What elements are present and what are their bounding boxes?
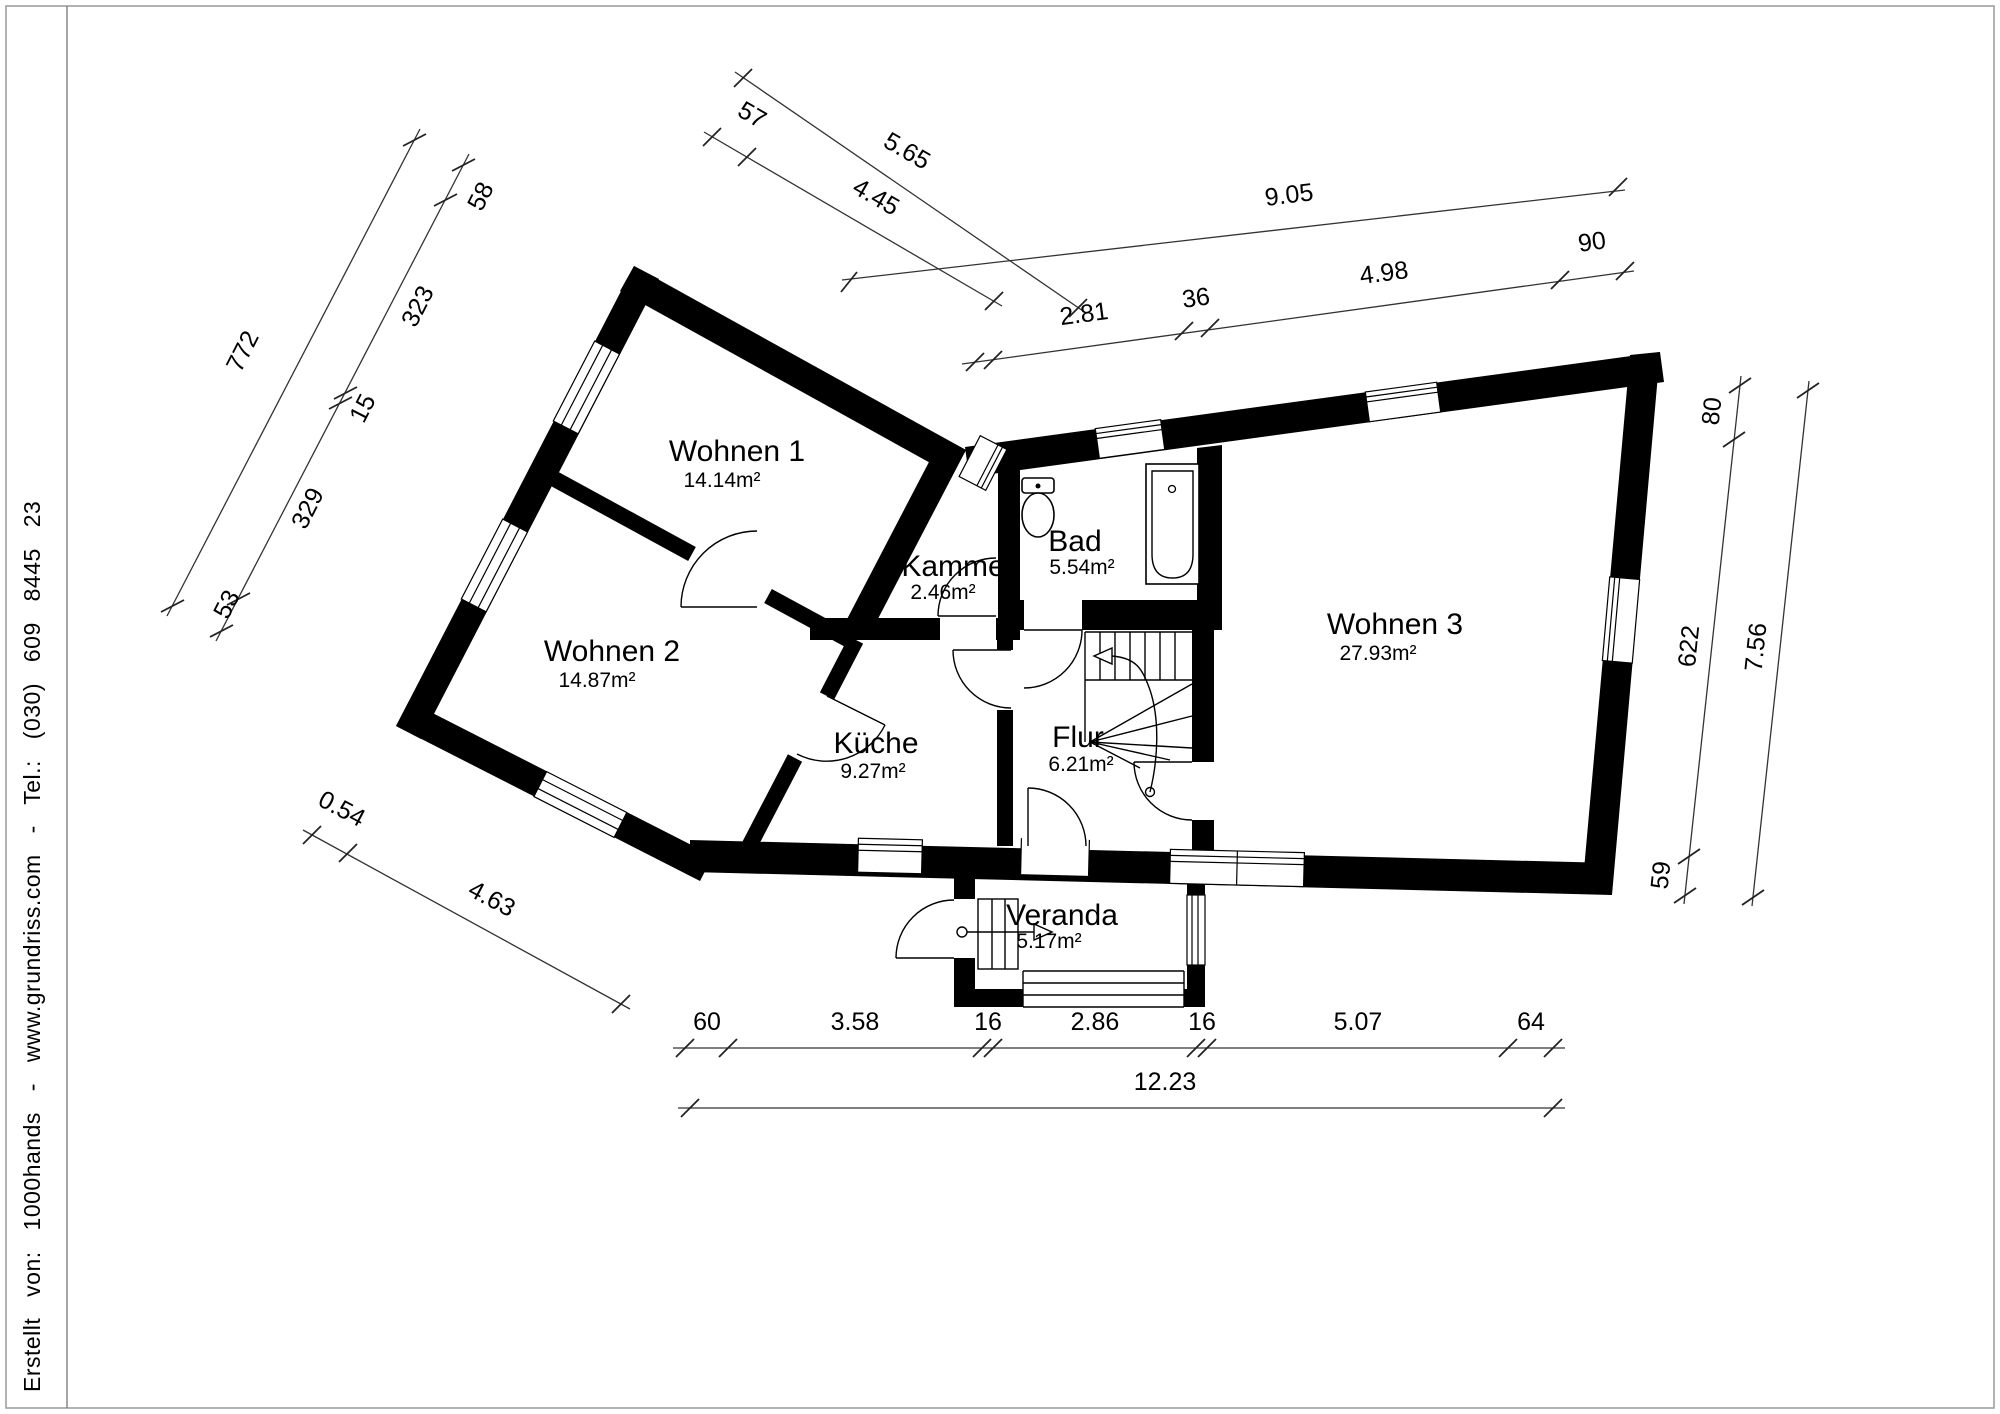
dim-label: 16 <box>974 1008 1002 1036</box>
stair-direction-arrow-icon <box>1094 648 1112 664</box>
dimension-top-left: 5.65 57 4.45 <box>703 69 1087 317</box>
bathtub <box>1146 464 1199 584</box>
dim-label: 5.65 <box>879 127 935 176</box>
veranda-steps <box>1023 971 1184 1007</box>
dim-label: 4.45 <box>848 173 904 222</box>
wall <box>744 758 795 856</box>
wall <box>690 840 1612 895</box>
dim-label: 2.86 <box>1071 1008 1120 1036</box>
drawing-sheet: Erstellt von: 1000hands - www.grundriss.… <box>0 0 2000 1414</box>
wall <box>827 640 856 696</box>
room-label: Flur <box>1052 721 1104 754</box>
wall <box>1197 445 1222 630</box>
wall <box>810 618 940 640</box>
room-label: Küche <box>833 727 918 760</box>
dim-label: 772 <box>221 326 265 376</box>
dim-label: 4.63 <box>464 875 520 923</box>
dim-label: 90 <box>1576 226 1607 257</box>
dimension-top-right: 9.05 2.81 36 4.98 90 <box>841 178 1634 371</box>
wall <box>1192 630 1214 762</box>
dim-label: 4.98 <box>1358 256 1410 290</box>
room-area: 27.93m² <box>1339 642 1416 665</box>
room-area: 6.21m² <box>1048 753 1113 776</box>
dim-label: 57 <box>733 96 771 134</box>
dim-label: 80 <box>1697 396 1728 427</box>
dim-label: 58 <box>462 178 500 215</box>
dim-label: 15 <box>344 390 382 427</box>
room-label: Wohnen 2 <box>544 635 680 668</box>
wall <box>845 437 966 636</box>
dim-label: 3.58 <box>831 1008 880 1036</box>
room-area: 14.87m² <box>558 669 635 692</box>
dim-label: 329 <box>286 483 330 533</box>
dim-label: 16 <box>1188 1008 1216 1036</box>
window <box>1170 849 1305 886</box>
dim-label: 323 <box>396 281 440 331</box>
dim-label: 36 <box>1180 282 1211 313</box>
dimension-left: 772 58 323 15 329 53 <box>161 129 500 641</box>
door-kueche <box>953 650 1011 708</box>
door-flur-entrance <box>1028 788 1086 846</box>
door-wohnen3 <box>1134 762 1192 820</box>
dim-label: 2.81 <box>1058 297 1110 331</box>
wall <box>997 640 1013 650</box>
window <box>1602 577 1639 663</box>
room-label: Veranda <box>1006 899 1118 932</box>
wall <box>998 600 1024 630</box>
dim-label: 9.05 <box>1263 178 1315 212</box>
dim-label: 5.07 <box>1334 1008 1383 1036</box>
dim-label: 60 <box>693 1008 721 1036</box>
dim-label: 12.23 <box>1134 1068 1197 1096</box>
room-label: Kammer <box>901 550 1014 583</box>
window <box>534 772 627 838</box>
window <box>553 341 619 434</box>
dim-label: 53 <box>208 586 246 623</box>
room-area: 14.14m² <box>683 469 760 492</box>
wall <box>1187 965 1205 1007</box>
wall <box>965 352 1664 477</box>
window <box>858 838 923 874</box>
credit-text: Erstellt von: 1000hands - www.grundriss.… <box>19 501 45 1392</box>
wall <box>954 989 1023 1007</box>
dim-label: 622 <box>1673 624 1705 668</box>
room-label: Bad <box>1048 525 1101 558</box>
wall <box>954 874 975 899</box>
room-area: 2.46m² <box>910 581 975 604</box>
dimension-bottom: 60 3.58 16 2.86 16 5.07 64 12.23 <box>673 1008 1565 1117</box>
room-area: 5.54m² <box>1049 556 1114 579</box>
room-label: Wohnen 1 <box>669 435 805 468</box>
dim-label: 0.54 <box>314 785 370 833</box>
dim-label: 59 <box>1646 860 1677 891</box>
window <box>1365 382 1440 421</box>
window <box>1187 895 1205 965</box>
door-wohnen1 <box>681 531 757 607</box>
room-area: 5.17m² <box>1016 930 1081 953</box>
dimension-right: 80 622 59 7.56 <box>1646 376 1819 906</box>
window <box>1095 420 1164 459</box>
wall <box>551 477 692 554</box>
window <box>461 519 527 612</box>
room-label: Wohnen 3 <box>1327 608 1463 641</box>
wall <box>997 710 1013 846</box>
dim-label: 7.56 <box>1740 621 1773 672</box>
floor-plan-svg: Erstellt von: 1000hands - www.grundriss.… <box>0 0 2000 1414</box>
entrance-opening <box>1021 838 1090 876</box>
room-area: 9.27m² <box>840 760 905 783</box>
dim-label: 64 <box>1517 1008 1545 1036</box>
door-bad <box>1024 630 1082 688</box>
